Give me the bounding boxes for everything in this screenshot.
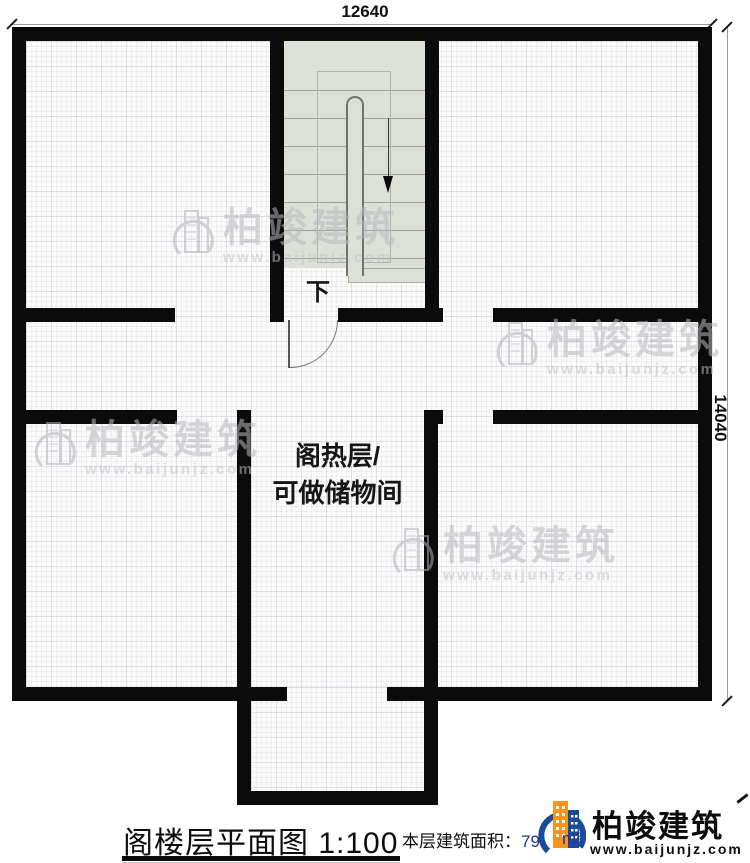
staircase-railing	[346, 96, 364, 276]
title-underline	[122, 856, 400, 861]
wall	[26, 308, 175, 322]
stair-down-arrow-icon	[383, 176, 393, 193]
wall	[493, 410, 698, 424]
dimension-top-label: 12640	[325, 2, 405, 22]
dimension-right-label: 14040	[710, 388, 730, 448]
area-unit: m²	[562, 829, 582, 849]
dimension-top-line	[12, 24, 712, 25]
center-room-label-line1: 阁热层/	[251, 438, 424, 475]
wall	[270, 41, 284, 322]
stair-direction-line	[388, 118, 389, 178]
area-text: 本层建筑面积：79	[402, 827, 540, 852]
floorplan-canvas: 12640 14040 下 阁热层/ 可做储物间	[0, 0, 750, 863]
wall	[26, 410, 177, 424]
dimension-right-line	[727, 27, 728, 701]
wall	[338, 308, 443, 322]
brand-url: www.baijunjz.com	[590, 841, 743, 857]
wall	[424, 410, 438, 805]
wall	[493, 308, 698, 322]
center-room-label: 阁热层/ 可做储物间	[251, 438, 424, 512]
wall	[425, 41, 439, 321]
brand-tick-mark	[736, 793, 748, 803]
wall	[237, 410, 251, 805]
wall	[237, 791, 438, 805]
brand-name: 柏竣建筑	[592, 801, 724, 846]
stairwell-extension-floor	[251, 687, 424, 791]
door-leaf	[288, 320, 290, 368]
stair-down-label: 下	[300, 272, 336, 307]
center-room-label-line2: 可做储物间	[251, 475, 424, 512]
wall	[12, 27, 712, 41]
wall	[698, 27, 712, 701]
area-label: 本层建筑面积：	[402, 832, 521, 851]
wall	[12, 27, 26, 701]
